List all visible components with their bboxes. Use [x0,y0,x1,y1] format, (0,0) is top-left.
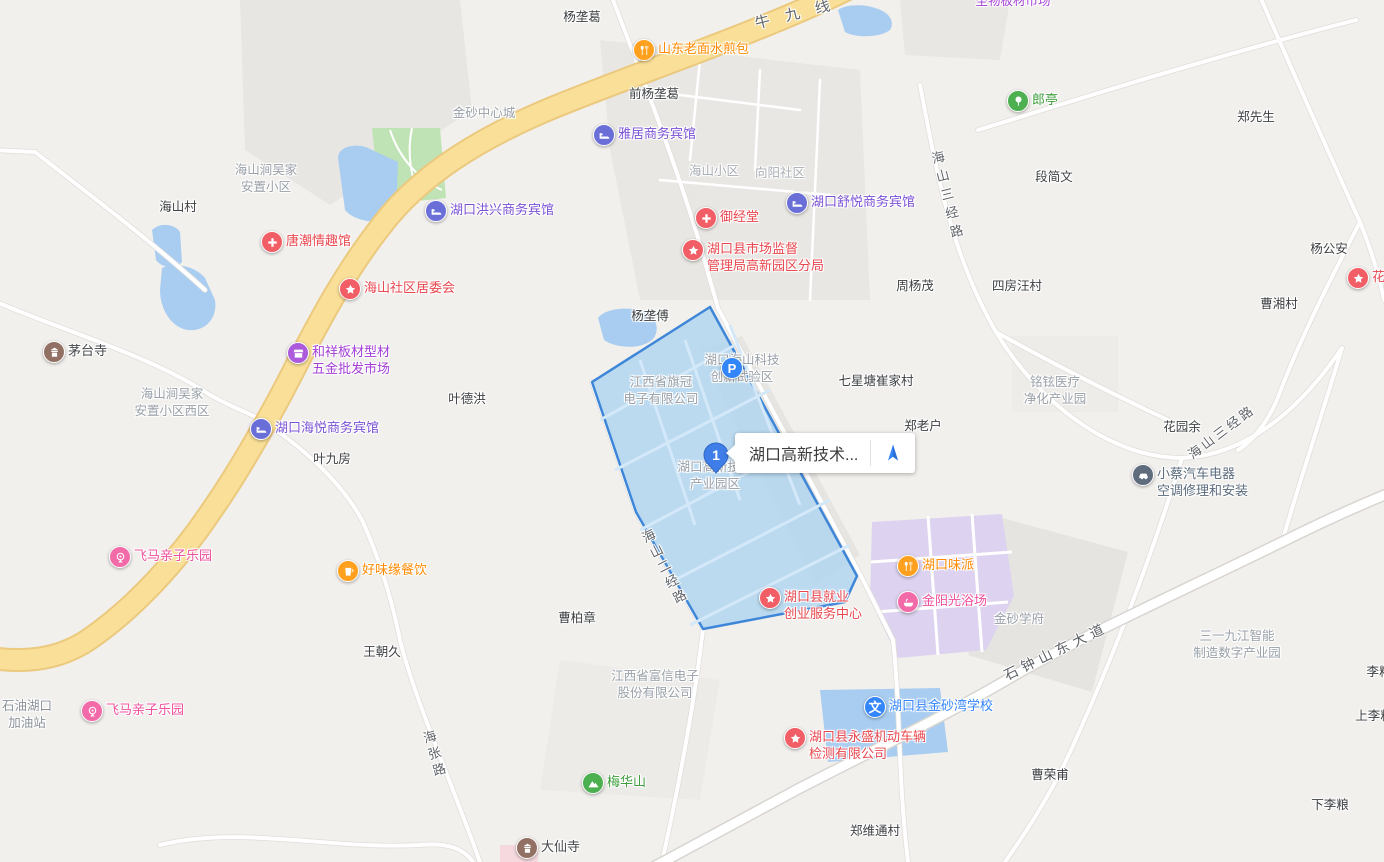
directions-button[interactable] [871,433,915,473]
bed-icon[interactable] [593,124,615,146]
poi-label[interactable]: 飞马亲子乐园 [134,548,212,565]
cross-icon[interactable] [695,207,717,229]
bed-icon[interactable] [250,418,272,440]
poi-label[interactable]: 金阳光浴场 [922,593,987,610]
poi-label[interactable]: 湖口海悦商务宾馆 [275,420,379,437]
route-arrow-icon [883,443,903,463]
star-icon[interactable] [682,239,704,261]
map-viewport[interactable]: 金砂中心城海山涧吴家安置小区海山小区向阳社区海山涧吴家安置小区西区江西省旗冠电子… [0,0,1384,862]
star-icon[interactable] [339,278,361,300]
utensils-icon[interactable] [897,555,919,577]
mountain-icon[interactable] [582,772,604,794]
poi-label[interactable]: 御经堂 [720,209,759,226]
poi-label[interactable]: 小蔡汽车电器空调修理和安装 [1157,466,1248,500]
search-result-callout[interactable]: 湖口高新技术... [735,433,915,473]
tree-icon[interactable] [1007,90,1029,112]
bed-icon[interactable] [786,192,808,214]
cup-icon[interactable] [337,560,359,582]
callout-pointer [726,445,735,461]
poi-label[interactable]: 唐潮情趣馆 [286,233,351,250]
poi-label[interactable]: 和祥板材型材五金批发市场 [312,344,390,378]
poi-label[interactable]: 湖口县永盛机动车辆检测有限公司 [809,729,926,763]
poi-label[interactable]: 湖口县市场监督管理局高新园区分局 [707,241,824,275]
pagoda-icon[interactable] [43,341,65,363]
wen-icon[interactable]: 文 [864,696,886,718]
pagoda-icon[interactable] [516,837,538,859]
poi-label[interactable]: 海山社区居委会 [364,280,455,297]
poi-label[interactable]: 湖口县就业创业服务中心 [784,589,862,623]
callout-title[interactable]: 湖口高新技术... [735,441,870,465]
poi-label[interactable]: 好味缘餐饮 [362,562,427,579]
poi-label[interactable]: 雅居商务宾馆 [618,126,696,143]
utensils-icon[interactable] [633,39,655,61]
poi-label[interactable]: 湖口舒悦商务宾馆 [811,194,915,211]
poi-glyph: P [728,362,737,375]
poi-label[interactable]: 茅台寺 [68,343,107,360]
poi-label[interactable]: 郎亭 [1032,92,1058,109]
shop-icon[interactable] [287,342,309,364]
star-icon[interactable] [784,727,806,749]
poi-label[interactable]: 山东老面水煎包 [658,41,749,58]
star-icon[interactable] [1347,267,1369,289]
poi-label[interactable]: 湖口县金砂湾学校 [889,698,993,715]
ferris-icon[interactable] [81,700,103,722]
cross-icon[interactable] [261,231,283,253]
poi-label[interactable]: 湖口味派 [922,557,974,574]
poi-label[interactable]: 大仙寺 [541,839,580,856]
poi-label[interactable]: 湖口洪兴商务宾馆 [450,202,554,219]
marker-number: 1 [712,447,720,463]
bed-icon[interactable] [425,200,447,222]
poi-glyph: 文 [868,701,881,714]
ferris-icon[interactable] [109,546,131,568]
poi-label[interactable]: 飞马亲子乐园 [106,702,184,719]
bath-icon[interactable] [897,591,919,613]
parking-icon[interactable]: P [721,357,743,379]
star-icon[interactable] [759,587,781,609]
poi-label[interactable]: 花田 [1372,269,1384,286]
poi-label[interactable]: 梅华山 [607,774,646,791]
car-icon[interactable] [1132,464,1154,486]
